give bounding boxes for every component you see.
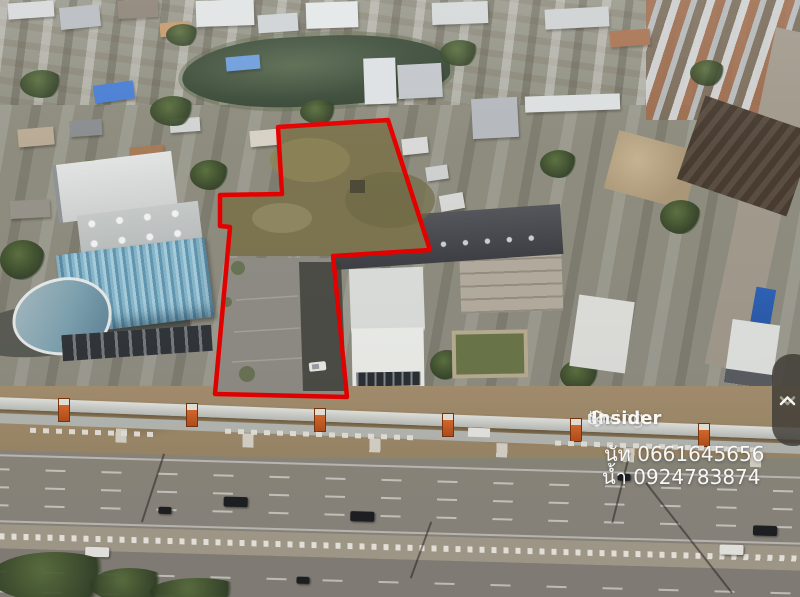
vehicle: [753, 525, 777, 536]
tree: [540, 150, 578, 178]
vehicle: [224, 497, 248, 508]
crane: [186, 403, 198, 427]
aerial-photo: LivingInsider.com นัท 0661645656 น้ำ 092…: [0, 0, 800, 597]
tall-white-building: [363, 57, 397, 104]
tree: [0, 240, 46, 280]
tree: [250, 300, 286, 340]
building: [69, 119, 102, 137]
white-building: [569, 294, 634, 373]
scroll-widget[interactable]: [772, 354, 800, 446]
tree: [190, 160, 230, 190]
rooftop-vents: [350, 231, 550, 259]
building: [10, 199, 51, 219]
tree: [238, 200, 272, 226]
apartment-block: [397, 63, 443, 99]
building: [401, 137, 429, 156]
building: [257, 13, 298, 34]
courtyard-lawn: [452, 329, 529, 378]
building: [306, 1, 359, 29]
truck: [468, 428, 490, 438]
tree: [166, 24, 200, 46]
blue-roof-house: [225, 55, 260, 72]
tree: [150, 96, 196, 126]
long-white-building: [525, 93, 621, 112]
building: [432, 1, 489, 25]
tree: [20, 70, 64, 98]
living-insider-logo: LivingInsider.com: [588, 410, 605, 427]
building: [118, 0, 159, 19]
building: [196, 0, 255, 27]
crane: [58, 398, 70, 422]
building: [17, 126, 54, 147]
vehicle: [719, 544, 743, 555]
white-office-building: [349, 267, 425, 334]
tree: [660, 200, 702, 234]
tree: [300, 100, 338, 124]
brand-suffix: .com: [588, 414, 613, 427]
crane: [314, 408, 326, 432]
crane: [442, 413, 454, 437]
building: [609, 29, 650, 48]
vehicle: [158, 507, 171, 514]
building: [249, 129, 278, 147]
chevron-down-icon[interactable]: [779, 395, 796, 406]
apartment-block: [471, 97, 519, 139]
building: [7, 0, 54, 19]
tree: [440, 40, 480, 66]
window-band: [356, 371, 420, 386]
vehicle: [350, 511, 374, 522]
building: [59, 4, 101, 30]
building: [545, 6, 610, 29]
white-office-annex: [351, 327, 424, 388]
tree: [690, 60, 726, 86]
contact-line: น้ำ 0924783874: [602, 461, 761, 493]
vehicle: [296, 577, 309, 584]
crane: [570, 418, 582, 442]
